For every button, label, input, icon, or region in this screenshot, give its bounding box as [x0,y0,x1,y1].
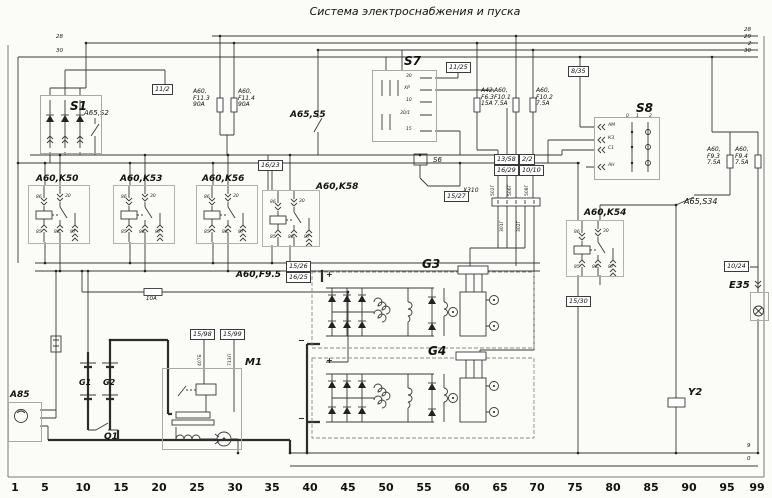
k54-label: A60,K54 [584,209,626,218]
terminal-label: 87 [70,231,76,236]
ref-box: 15/30 [566,296,591,307]
g3-box [312,272,534,348]
fuse-f101-label: A60, F10.1 7.5A [494,88,511,108]
k50-label: A60,K50 [36,175,78,184]
wire-tag: 713Л [229,354,234,366]
terminal-label: 87 [304,236,310,241]
ruler-mark: 1 [7,481,23,494]
terminal-label: 30 [233,195,239,200]
bus-label: 29 [744,35,751,41]
wire-tag: 302Г [518,221,523,232]
relay-k58: 86 30 85 88 87 [262,190,320,247]
bus-label: 28 [56,35,63,41]
wire-tag: 407Б [199,354,204,366]
g4-connector [456,352,486,360]
bus-label: 30 [56,49,63,55]
wire-tag: 301Г [501,221,506,232]
g3-minus-sign: − [298,337,305,345]
ref-box: 2/2 [519,154,535,165]
terminal-label: 86 [36,196,42,201]
bus-label: 2 [748,42,752,48]
s6-label: S6 [433,157,442,164]
bus-label: 28 [744,28,751,34]
fuse-f113-label: A60, F11.3 90A [193,89,210,109]
g1-label: G1 [79,379,91,387]
bus-label: 30 [744,49,751,55]
fuse-f102-label: A60, F10.2 7.5A [536,88,553,108]
relay-k53: 86 30 85 88 87 [113,185,175,244]
terminal-label: 87 [155,231,161,236]
k58-label: A60,K58 [316,183,358,192]
m1-box [162,368,242,450]
g4-label: G4 [428,345,446,357]
ruler-mark: 99 [749,481,765,494]
fuse-f114-label: A60, F11.4 90A [238,89,255,109]
ref-box: 8/35 [568,66,589,77]
bus-label: 0 [747,457,751,463]
terminal-label: 86 [121,196,127,201]
terminal-label: 88 [288,236,294,241]
ruler-mark: 10 [75,481,91,494]
ref-box: 13/58 [494,154,519,165]
ref-box: 16/29 [494,165,519,176]
g3-internals [326,274,499,336]
terminal-label: 85 [121,231,127,236]
g3-connector [458,266,488,274]
ruler-mark: 30 [227,481,243,494]
q1-label: Q1 [104,433,118,442]
terminal-label: 86 [204,196,210,201]
ref-box: 11/2 [152,84,173,95]
terminal-label: 87 [238,231,244,236]
wire-tag: 506Г [509,185,514,196]
ref-box: 15/99 [220,329,245,340]
relay-k54: 86 30 85 88 87 [566,220,624,277]
fuse-f63-label: A42, F6.3 15A [481,88,495,108]
terminal-label: 30 [299,200,305,205]
bus-label: 9 [747,444,751,450]
terminal-label: 88 [139,231,145,236]
ruler-mark: 75 [567,481,583,494]
terminal-label: 30 [603,230,609,235]
terminal-label: 30 [150,195,156,200]
k53-label: A60,K53 [120,175,162,184]
ruler-mark: 65 [492,481,508,494]
s8-box [594,117,660,180]
s34-label: A65,S34 [684,198,717,206]
g4-internals [326,360,499,422]
ref-box: 15/27 [444,191,469,202]
wire-tag: 502Г [492,185,497,196]
ruler-mark: 60 [454,481,470,494]
ruler-mark: 45 [340,481,356,494]
terminal-label: 85 [36,231,42,236]
ruler-mark: 35 [264,481,280,494]
s5-label: A65,S5 [290,111,326,120]
ruler-mark: 55 [416,481,432,494]
terminal-label: 85 [574,266,580,271]
terminal-label: 88 [222,231,228,236]
ruler-mark: 80 [605,481,621,494]
g2-label: G2 [103,379,115,387]
ruler-mark: 15 [113,481,129,494]
terminal-label: 86 [270,201,276,206]
ref-box: 15/26 [286,261,311,272]
ref-box: 16/23 [258,160,283,171]
a85-box [8,402,42,442]
y2-label: Y2 [688,388,702,398]
s7-label: S7 [404,55,421,67]
e35-box [750,292,769,321]
ruler-mark: 40 [302,481,318,494]
s7-box [372,70,437,142]
ruler-mark: 95 [719,481,735,494]
ruler-mark: 90 [681,481,697,494]
schematic-page: Система электроснабжения и пуска 86 30 8… [0,0,772,498]
k56-label: A60,K56 [202,175,244,184]
terminal-label: 88 [592,266,598,271]
s1-box [40,95,102,154]
page-title: Система электроснабжения и пуска [250,6,580,17]
ref-box: 10/24 [724,261,749,272]
y2-body [668,398,685,407]
terminal-label: 86 [574,231,580,236]
ruler-mark: 5 [37,481,53,494]
terminal-label: 87 [608,266,614,271]
ruler-mark: 20 [151,481,167,494]
relay-k56: 86 30 85 88 87 [196,185,258,244]
g4-plus-sign: + [326,357,333,365]
ref-box: 16/25 [286,272,311,283]
relay-k50: 86 30 85 88 87 [28,185,90,244]
terminal-label: 85 [204,231,210,236]
ruler-mark: 50 [378,481,394,494]
terminal-label: 85 [270,236,276,241]
ref-box: 15/98 [190,329,215,340]
fuse-f94-label: A60, F9.4 7.5A [735,147,749,167]
g3-label: G3 [422,258,440,270]
ruler-mark: 85 [643,481,659,494]
wire-tag: 508Г [526,185,531,196]
fuse-f93-label: A60, F9.3 7.5A [707,147,721,167]
e35-label: E35 [729,281,750,291]
g3-plus-sign: + [326,271,333,279]
a85-label: A85 [10,391,30,400]
ruler-mark: 70 [529,481,545,494]
f95-rating: 10A [146,297,157,303]
s8-label: S8 [636,102,653,114]
terminal-label: 88 [54,231,60,236]
f95-label: A60,F9.5 [236,271,281,280]
ref-box: 10/10 [519,165,544,176]
m1-label: M1 [245,358,262,368]
g4-minus-sign: − [298,415,305,423]
terminal-label: 30 [65,195,71,200]
ref-box: 11/25 [446,62,471,73]
ruler-mark: 25 [189,481,205,494]
